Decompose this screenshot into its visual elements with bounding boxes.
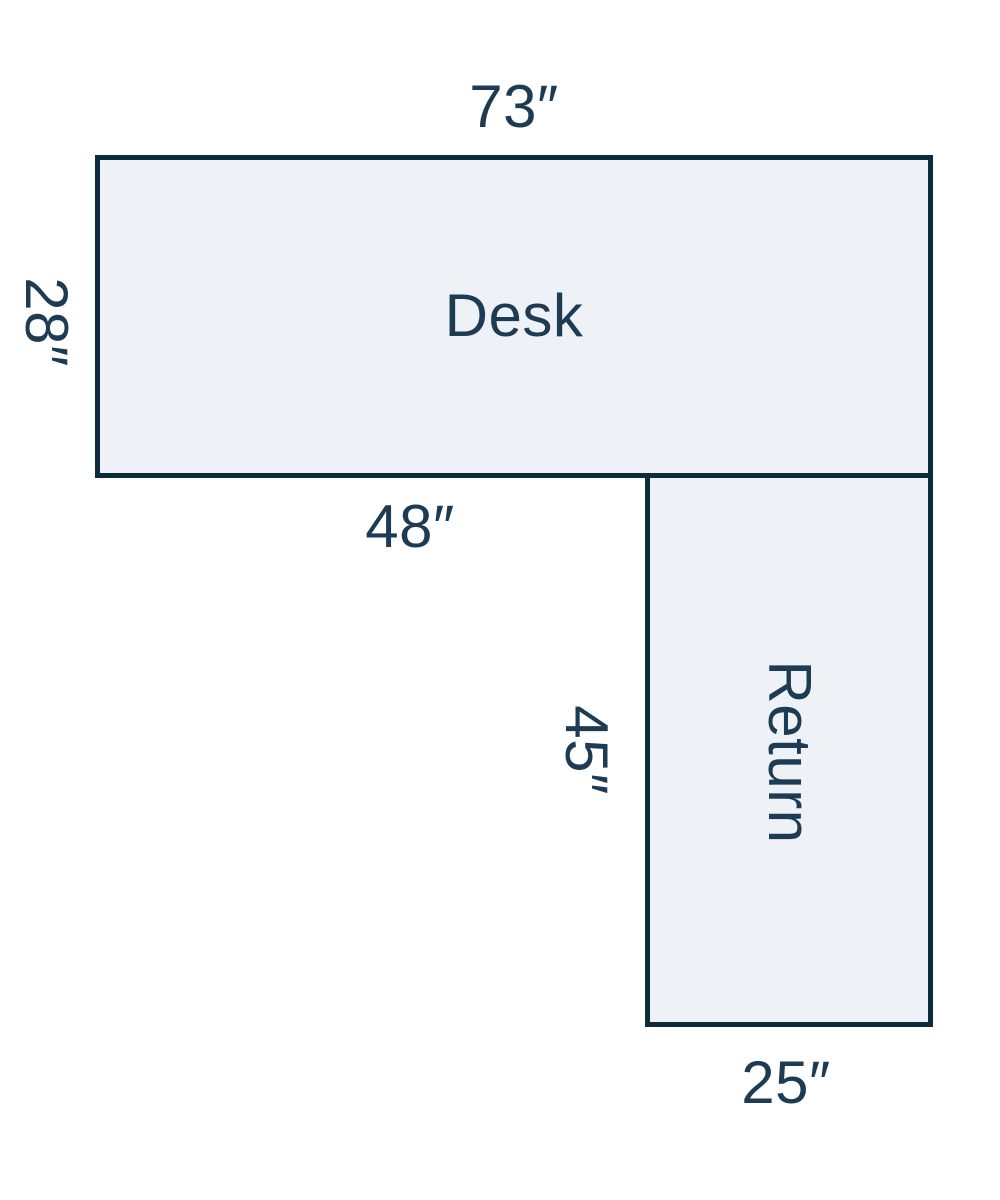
return-depth-dimension: 45″ xyxy=(556,705,616,794)
desk-width-dimension: 73″ xyxy=(469,77,558,137)
desk-label: Desk xyxy=(445,286,584,346)
return-width-dimension: 25″ xyxy=(741,1053,830,1113)
desk-bottom-segment-dimension: 48″ xyxy=(365,497,454,557)
desk-depth-dimension: 28″ xyxy=(16,277,76,366)
desk-layout-diagram: 73″ 28″ Desk 48″ 45″ Return 25″ xyxy=(0,0,1000,1200)
return-label: Return xyxy=(759,660,819,843)
